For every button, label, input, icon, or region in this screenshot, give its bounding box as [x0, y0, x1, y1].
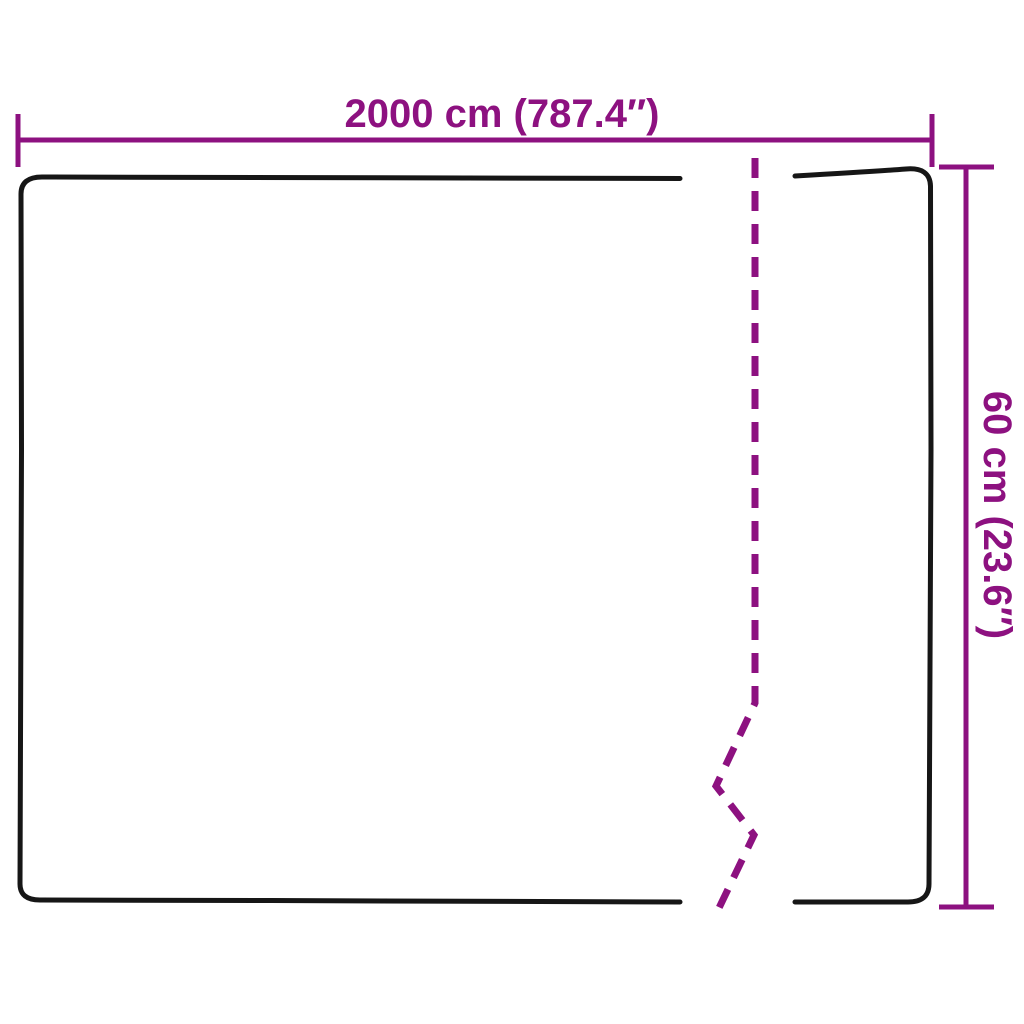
product-dimension-diagram: 2000 cm (787.4″) 60 cm (23.6″) — [0, 0, 1024, 1024]
product-outline-right-part — [795, 169, 931, 902]
diagram-canvas: 2000 cm (787.4″) 60 cm (23.6″) — [0, 0, 1024, 1024]
product-outline-left-part — [20, 177, 680, 902]
product-outline — [20, 169, 931, 902]
seam-break-dashed-line — [716, 158, 755, 908]
height-dimension-label: 60 cm (23.6″) — [975, 391, 1019, 639]
width-dimension-label: 2000 cm (787.4″) — [345, 92, 660, 136]
